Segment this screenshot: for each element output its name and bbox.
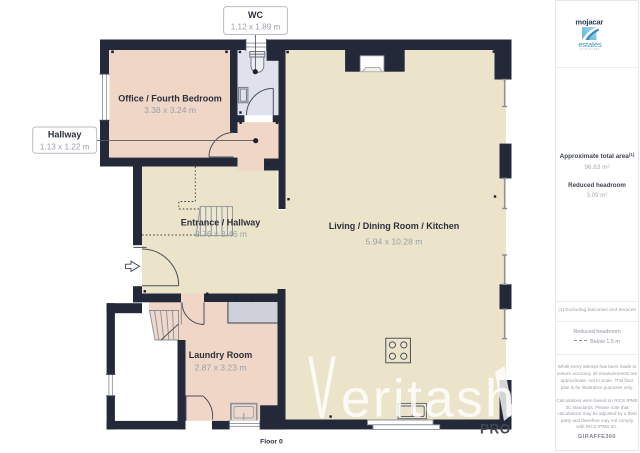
svg-text:2.76 x 3.46 m: 2.76 x 3.46 m bbox=[195, 229, 247, 239]
svg-text:V: V bbox=[308, 337, 336, 437]
svg-text:Living / Dining Room / Kitchen: Living / Dining Room / Kitchen bbox=[329, 221, 460, 231]
svg-text:1.12 x 1.89 m: 1.12 x 1.89 m bbox=[231, 23, 281, 32]
svg-text:Hallway: Hallway bbox=[48, 130, 82, 140]
svg-text:2.87 x 3.23 m: 2.87 x 3.23 m bbox=[194, 363, 246, 373]
svg-text:5.94 x 10.28 m: 5.94 x 10.28 m bbox=[366, 237, 423, 247]
svg-text:S I N C E 1 9 8 5: S I N C E 1 9 8 5 bbox=[580, 47, 600, 51]
svg-text:1.13 x 1.22 m: 1.13 x 1.22 m bbox=[40, 143, 90, 152]
svg-text:PRO: PRO bbox=[480, 422, 511, 437]
svg-text:Laundry Room: Laundry Room bbox=[189, 350, 253, 360]
svg-text:Floor 0: Floor 0 bbox=[260, 439, 283, 446]
svg-text:mojacar: mojacar bbox=[575, 18, 603, 27]
svg-text:eritash: eritash bbox=[341, 370, 517, 429]
svg-text:3.38 x 3.24 m: 3.38 x 3.24 m bbox=[144, 105, 196, 115]
svg-text:Office / Fourth Bedroom: Office / Fourth Bedroom bbox=[118, 94, 222, 104]
svg-text:WC: WC bbox=[248, 10, 263, 20]
svg-text:Entrance / Hallway: Entrance / Hallway bbox=[181, 217, 261, 227]
